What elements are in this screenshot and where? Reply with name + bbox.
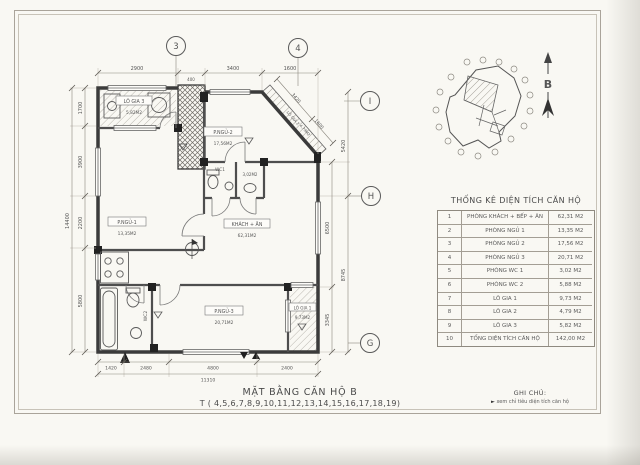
- dim-text: 3900: [78, 156, 84, 169]
- window: [108, 86, 166, 91]
- toilet-icon: [207, 170, 219, 189]
- north-arrow: B: [542, 52, 554, 118]
- dim-text: 1600: [313, 118, 325, 131]
- room-area: 13,35M2: [118, 231, 137, 237]
- door-bedroom3: [160, 285, 180, 305]
- unit-b-highlight: [464, 76, 498, 112]
- row-area: 62,31 M2: [549, 211, 592, 225]
- logia3-floor-hatch: [100, 90, 176, 126]
- table-row: 2PHÒNG NGỦ 113,35 M2: [438, 225, 594, 239]
- sink-icon: [225, 182, 233, 190]
- sheet-title: MẶT BẰNG CĂN HỘ B: [140, 387, 460, 398]
- row-no: 5: [438, 265, 462, 279]
- door-wc-small: [240, 198, 256, 214]
- north-arrowhead-icon: [544, 52, 552, 63]
- north-label: B: [544, 78, 552, 91]
- dim-text: 11310: [201, 378, 216, 384]
- row-name: TỔNG DIỆN TÍCH CĂN HỘ: [462, 333, 549, 346]
- grid-bubble-label: I: [369, 97, 372, 107]
- toilet-icon: [126, 288, 140, 307]
- table-row: 8LÔ GIA 24,79 M2: [438, 306, 594, 320]
- dim-text: 5800: [78, 295, 84, 308]
- row-name: PHÒNG NGỦ 1: [462, 225, 549, 239]
- grid-bubble-label: G: [367, 339, 374, 349]
- bathtub-icon: [101, 288, 118, 350]
- note-text: xem chỉ tiêu diện tích căn hộ: [496, 399, 568, 405]
- window: [210, 90, 250, 95]
- table-title: THỐNG KÊ DIỆN TÍCH CĂN HỘ: [437, 196, 595, 205]
- row-no: 10: [438, 333, 462, 346]
- door-wc1: [212, 198, 230, 216]
- window: [291, 283, 313, 288]
- level-markers: [154, 138, 306, 330]
- row-area: 5,82 M2: [549, 320, 592, 334]
- row-area: 3,02 M2: [549, 265, 592, 279]
- key-plan: [433, 57, 533, 159]
- row-name: PHÒNG KHÁCH + BẾP + ĂN: [462, 211, 549, 225]
- window: [183, 350, 249, 355]
- window: [316, 202, 321, 254]
- dim-text: 14400: [65, 213, 71, 229]
- room-label: KHÁCH + ĂN: [232, 221, 263, 228]
- row-name: LÔ GIA 3: [462, 320, 549, 334]
- room-area: 17,56M2: [214, 141, 233, 147]
- dim-text: 2480: [140, 366, 152, 372]
- sheet-title-block: MẶT BẰNG CĂN HỘ B T ( 4,5,6,7,8,9,10,11,…: [140, 387, 460, 408]
- table-row: 9LÔ GIA 35,82 M2: [438, 320, 594, 334]
- row-no: 7: [438, 293, 462, 307]
- row-name: PHÒNG WC 1: [462, 265, 549, 279]
- table-row: 4PHÒNG NGỦ 320,71 M2: [438, 252, 594, 266]
- dim-text: 1600: [284, 66, 297, 72]
- dim-text: 3345: [325, 314, 331, 327]
- row-no: 8: [438, 306, 462, 320]
- dim-text: 4800: [207, 366, 219, 372]
- scan-shadow-bottom: [0, 445, 640, 465]
- dim-text: 1700: [78, 102, 84, 115]
- window: [96, 254, 101, 280]
- section-arrow-icon: [240, 352, 248, 359]
- room-area: 3,02M2: [243, 172, 258, 177]
- row-name: PHÒNG NGỦ 2: [462, 238, 549, 252]
- scanned-floorplan-sheet: LÔ GIA 3 5,82M2 P.NGỦ-1 13,35M2 P.NGỦ-2 …: [0, 0, 640, 465]
- table-row: 1PHÒNG KHÁCH + BẾP + ĂN62,31 M2: [438, 211, 594, 225]
- notes-item: ► xem chỉ tiêu diện tích căn hộ: [468, 399, 592, 405]
- dim-text: 8745: [341, 269, 347, 282]
- row-area: 4,79 M2: [549, 306, 592, 320]
- note-bullet-icon: ►: [491, 399, 495, 405]
- row-area: 142,00 M2: [549, 333, 592, 346]
- table-row: 7LÔ GIA 19,73 M2: [438, 293, 594, 307]
- row-name: LÔ GIA 2: [462, 306, 549, 320]
- dim-text: 5420: [341, 140, 347, 153]
- row-area: 5,88 M2: [549, 279, 592, 293]
- grid-bubbles: 3 4 I H G: [167, 37, 381, 353]
- row-no: 3: [438, 238, 462, 252]
- sink-icon: [131, 328, 142, 339]
- table-row: 10TỔNG DIỆN TÍCH CĂN HỘ142,00 M2: [438, 333, 594, 346]
- table-grid: 1PHÒNG KHÁCH + BẾP + ĂN62,31 M2 2PHÒNG N…: [437, 210, 595, 347]
- washbasin-icon: [244, 184, 256, 193]
- window: [96, 148, 101, 196]
- room-label: WC2: [143, 311, 149, 322]
- notes-heading: GHI CHÚ:: [468, 389, 592, 397]
- dim-text: 400: [187, 77, 195, 82]
- row-no: 4: [438, 252, 462, 266]
- row-no: 9: [438, 320, 462, 334]
- table-row: 3PHÒNG NGỦ 217,56 M2: [438, 238, 594, 252]
- grid-bubble-label: 3: [173, 42, 178, 52]
- notes-block: GHI CHÚ: ► xem chỉ tiêu diện tích căn hộ: [468, 389, 592, 405]
- table-row: 6PHÒNG WC 25,88 M2: [438, 279, 594, 293]
- scan-shadow-right: [606, 0, 640, 465]
- room-label: WC1: [215, 167, 225, 172]
- grid-bubble-label: 4: [295, 44, 300, 54]
- grid-bubble-label: H: [368, 192, 374, 202]
- row-name: PHÒNG NGỦ 3: [462, 252, 549, 266]
- floor-plan: LÔ GIA 3 5,82M2 P.NGỦ-1 13,35M2 P.NGỦ-2 …: [94, 85, 326, 363]
- row-name: LÔ GIA 1: [462, 293, 549, 307]
- room-area: 20,71M2: [215, 320, 234, 326]
- room-area: 9,73M2: [295, 315, 311, 320]
- window: [114, 126, 156, 131]
- sheet-subtitle: T ( 4,5,6,7,8,9,10,11,12,13,14,15,16,17,…: [140, 399, 460, 408]
- row-no: 1: [438, 211, 462, 225]
- stove-icon: [101, 252, 129, 283]
- row-area: 20,71 M2: [549, 252, 592, 266]
- room-label: LÔ GIA 3: [124, 98, 145, 105]
- area-statistics-table: THỐNG KÊ DIỆN TÍCH CĂN HỘ 1PHÒNG KHÁCH +…: [437, 196, 595, 347]
- room-area: 62,31M2: [238, 233, 257, 239]
- row-name: PHÒNG WC 2: [462, 279, 549, 293]
- row-no: 2: [438, 225, 462, 239]
- dim-text: 6500: [325, 222, 331, 235]
- row-no: 6: [438, 279, 462, 293]
- dim-text: 2900: [131, 66, 144, 72]
- room-label: LÔ GIA 1: [294, 306, 312, 311]
- dim-text: 3400: [227, 66, 240, 72]
- dim-text: 2400: [281, 366, 293, 372]
- row-area: 17,56 M2: [549, 238, 592, 252]
- door-bedroom1: [182, 214, 204, 236]
- row-area: 13,35 M2: [549, 225, 592, 239]
- dim-text: 2200: [78, 217, 84, 230]
- table-row: 5PHÒNG WC 13,02 M2: [438, 265, 594, 279]
- row-area: 9,73 M2: [549, 293, 592, 307]
- dim-text: 3420: [290, 92, 302, 105]
- dim-text: 1420: [105, 366, 117, 372]
- room-area: 5,82M2: [126, 110, 142, 116]
